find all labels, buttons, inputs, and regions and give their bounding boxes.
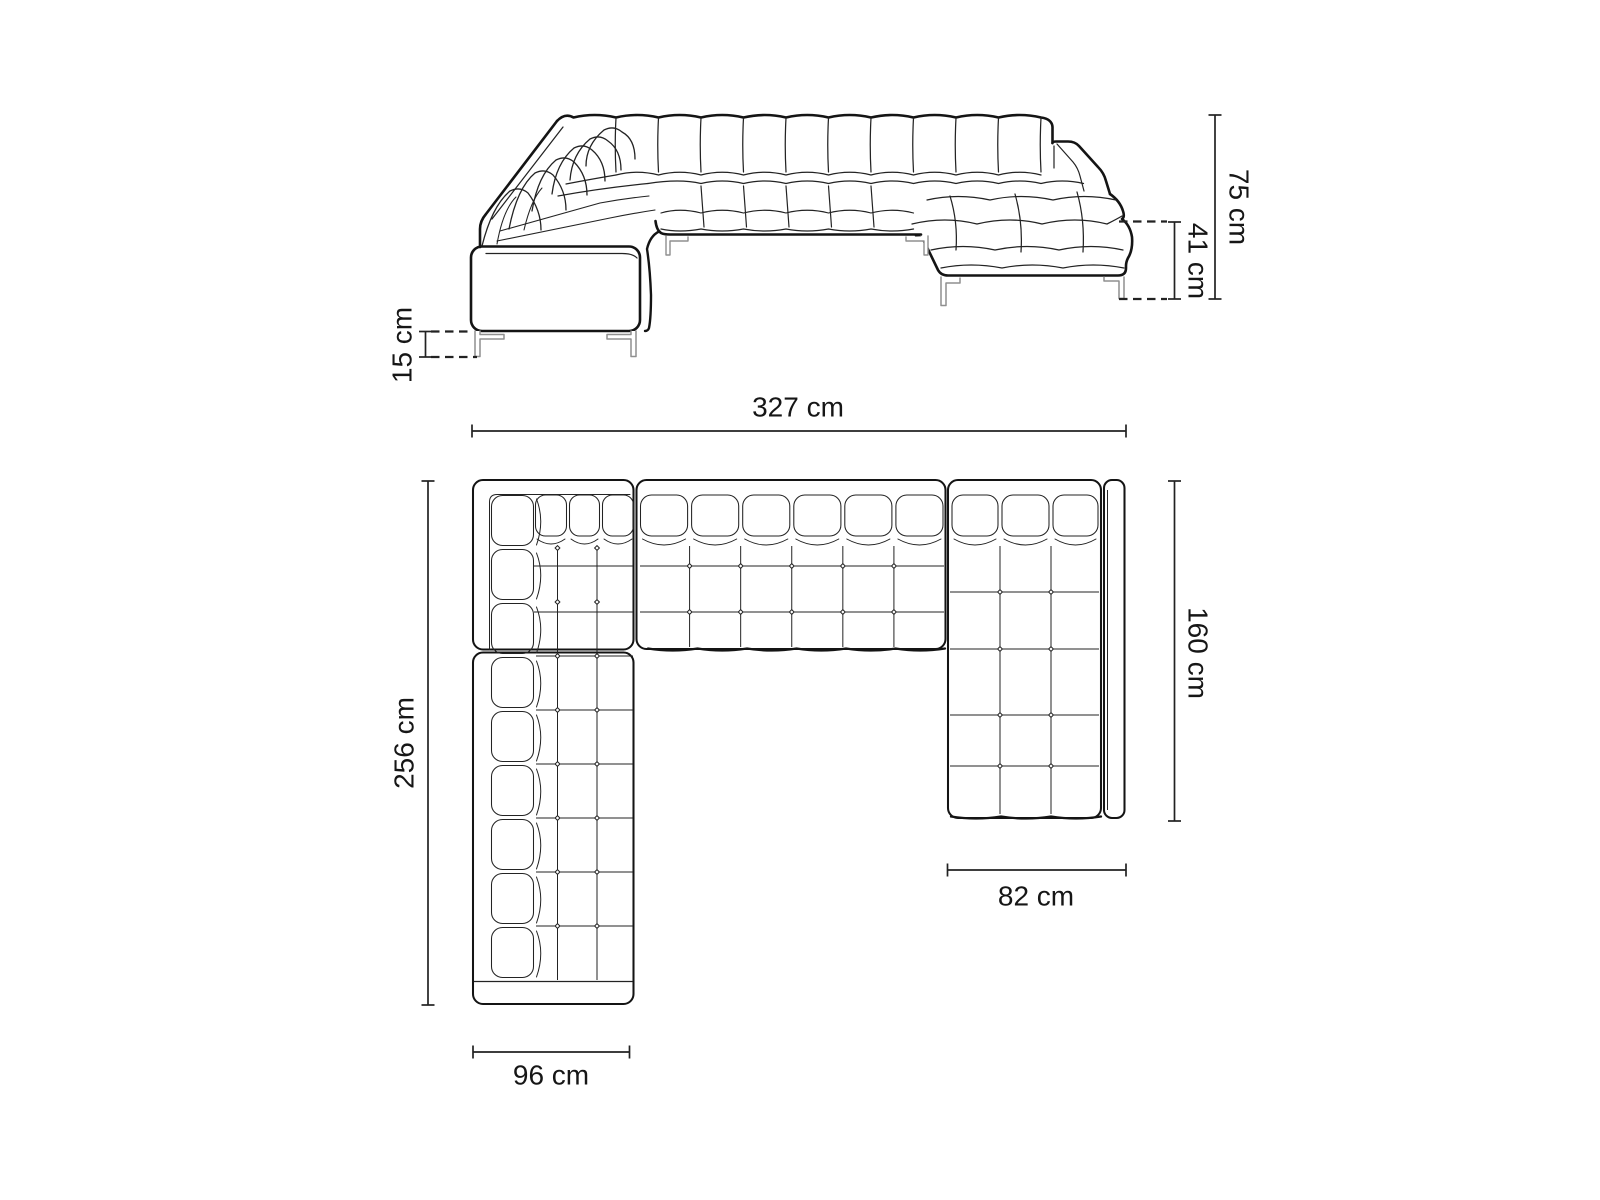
svg-text:82 cm: 82 cm [998,880,1074,911]
svg-text:75 cm: 75 cm [1224,169,1255,245]
svg-text:160 cm: 160 cm [1183,607,1214,699]
svg-text:256 cm: 256 cm [388,697,419,789]
svg-text:96 cm: 96 cm [513,1059,589,1090]
svg-text:41 cm: 41 cm [1183,223,1214,299]
svg-text:327 cm: 327 cm [752,391,844,422]
svg-text:15 cm: 15 cm [386,307,417,383]
